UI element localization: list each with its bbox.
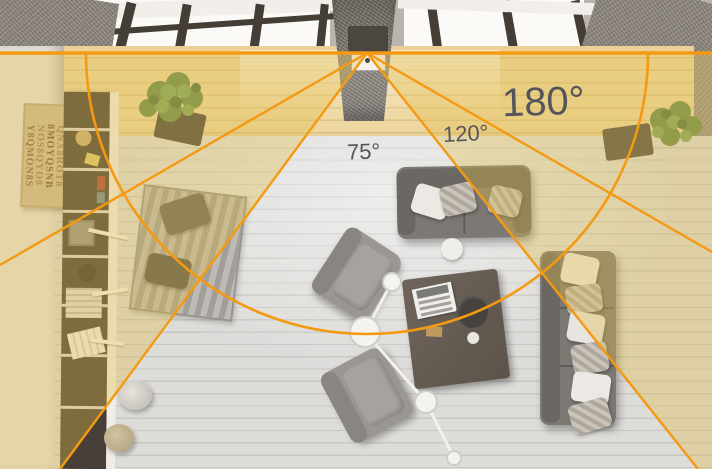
fov-overlay [0,0,712,469]
fov-label-180: 180° [501,79,585,127]
fov-label-75: 75° [347,138,381,165]
room-scene: S8NOQ8YMQNX8ROT8 8MOYQSNBNOS8QYO8 Y8QMON… [0,0,712,469]
fov-label-120: 120° [442,120,489,148]
